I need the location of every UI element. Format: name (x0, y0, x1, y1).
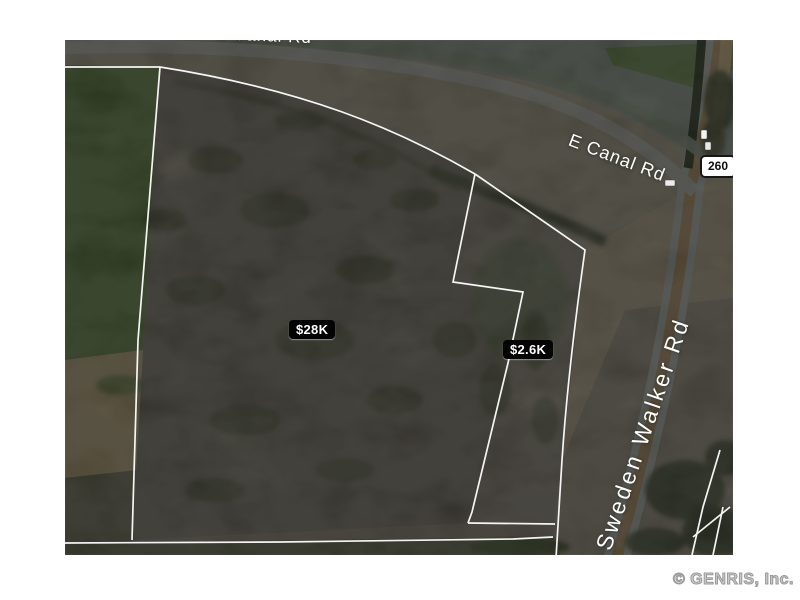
price-marker-28k[interactable]: $28K (289, 320, 335, 339)
price-marker-2-6k[interactable]: $2.6K (503, 340, 553, 359)
page: E Canal Rd E Canal Rd Sweden Walker Rd 2… (0, 0, 800, 600)
route-shield-260: 260 (700, 155, 733, 178)
map-canvas[interactable]: E Canal Rd E Canal Rd Sweden Walker Rd 2… (65, 40, 733, 555)
copyright-notice: © GENRIS, Inc. (673, 571, 794, 589)
